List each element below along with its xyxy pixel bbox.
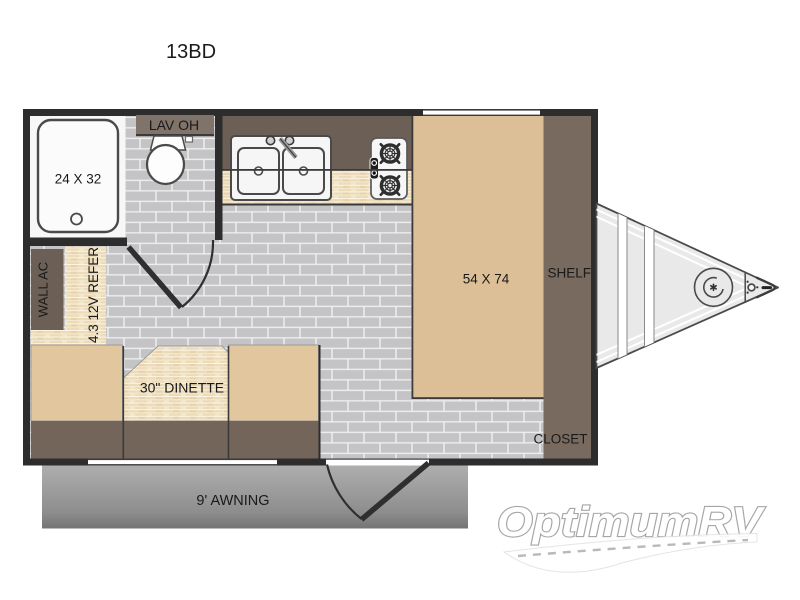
svg-text:4.3 12V REFER: 4.3 12V REFER: [86, 247, 101, 343]
svg-text:WALL AC: WALL AC: [36, 262, 51, 317]
svg-text:30" DINETTE: 30" DINETTE: [140, 380, 224, 396]
svg-text:13BD: 13BD: [166, 41, 216, 63]
svg-text:9' AWNING: 9' AWNING: [196, 493, 269, 509]
svg-text:24 X 32: 24 X 32: [55, 172, 102, 187]
svg-text:LAV OH: LAV OH: [149, 117, 199, 133]
svg-text:54 X 74: 54 X 74: [463, 272, 510, 287]
svg-text:CLOSET: CLOSET: [534, 432, 588, 447]
svg-text:SHELF: SHELF: [548, 266, 592, 281]
